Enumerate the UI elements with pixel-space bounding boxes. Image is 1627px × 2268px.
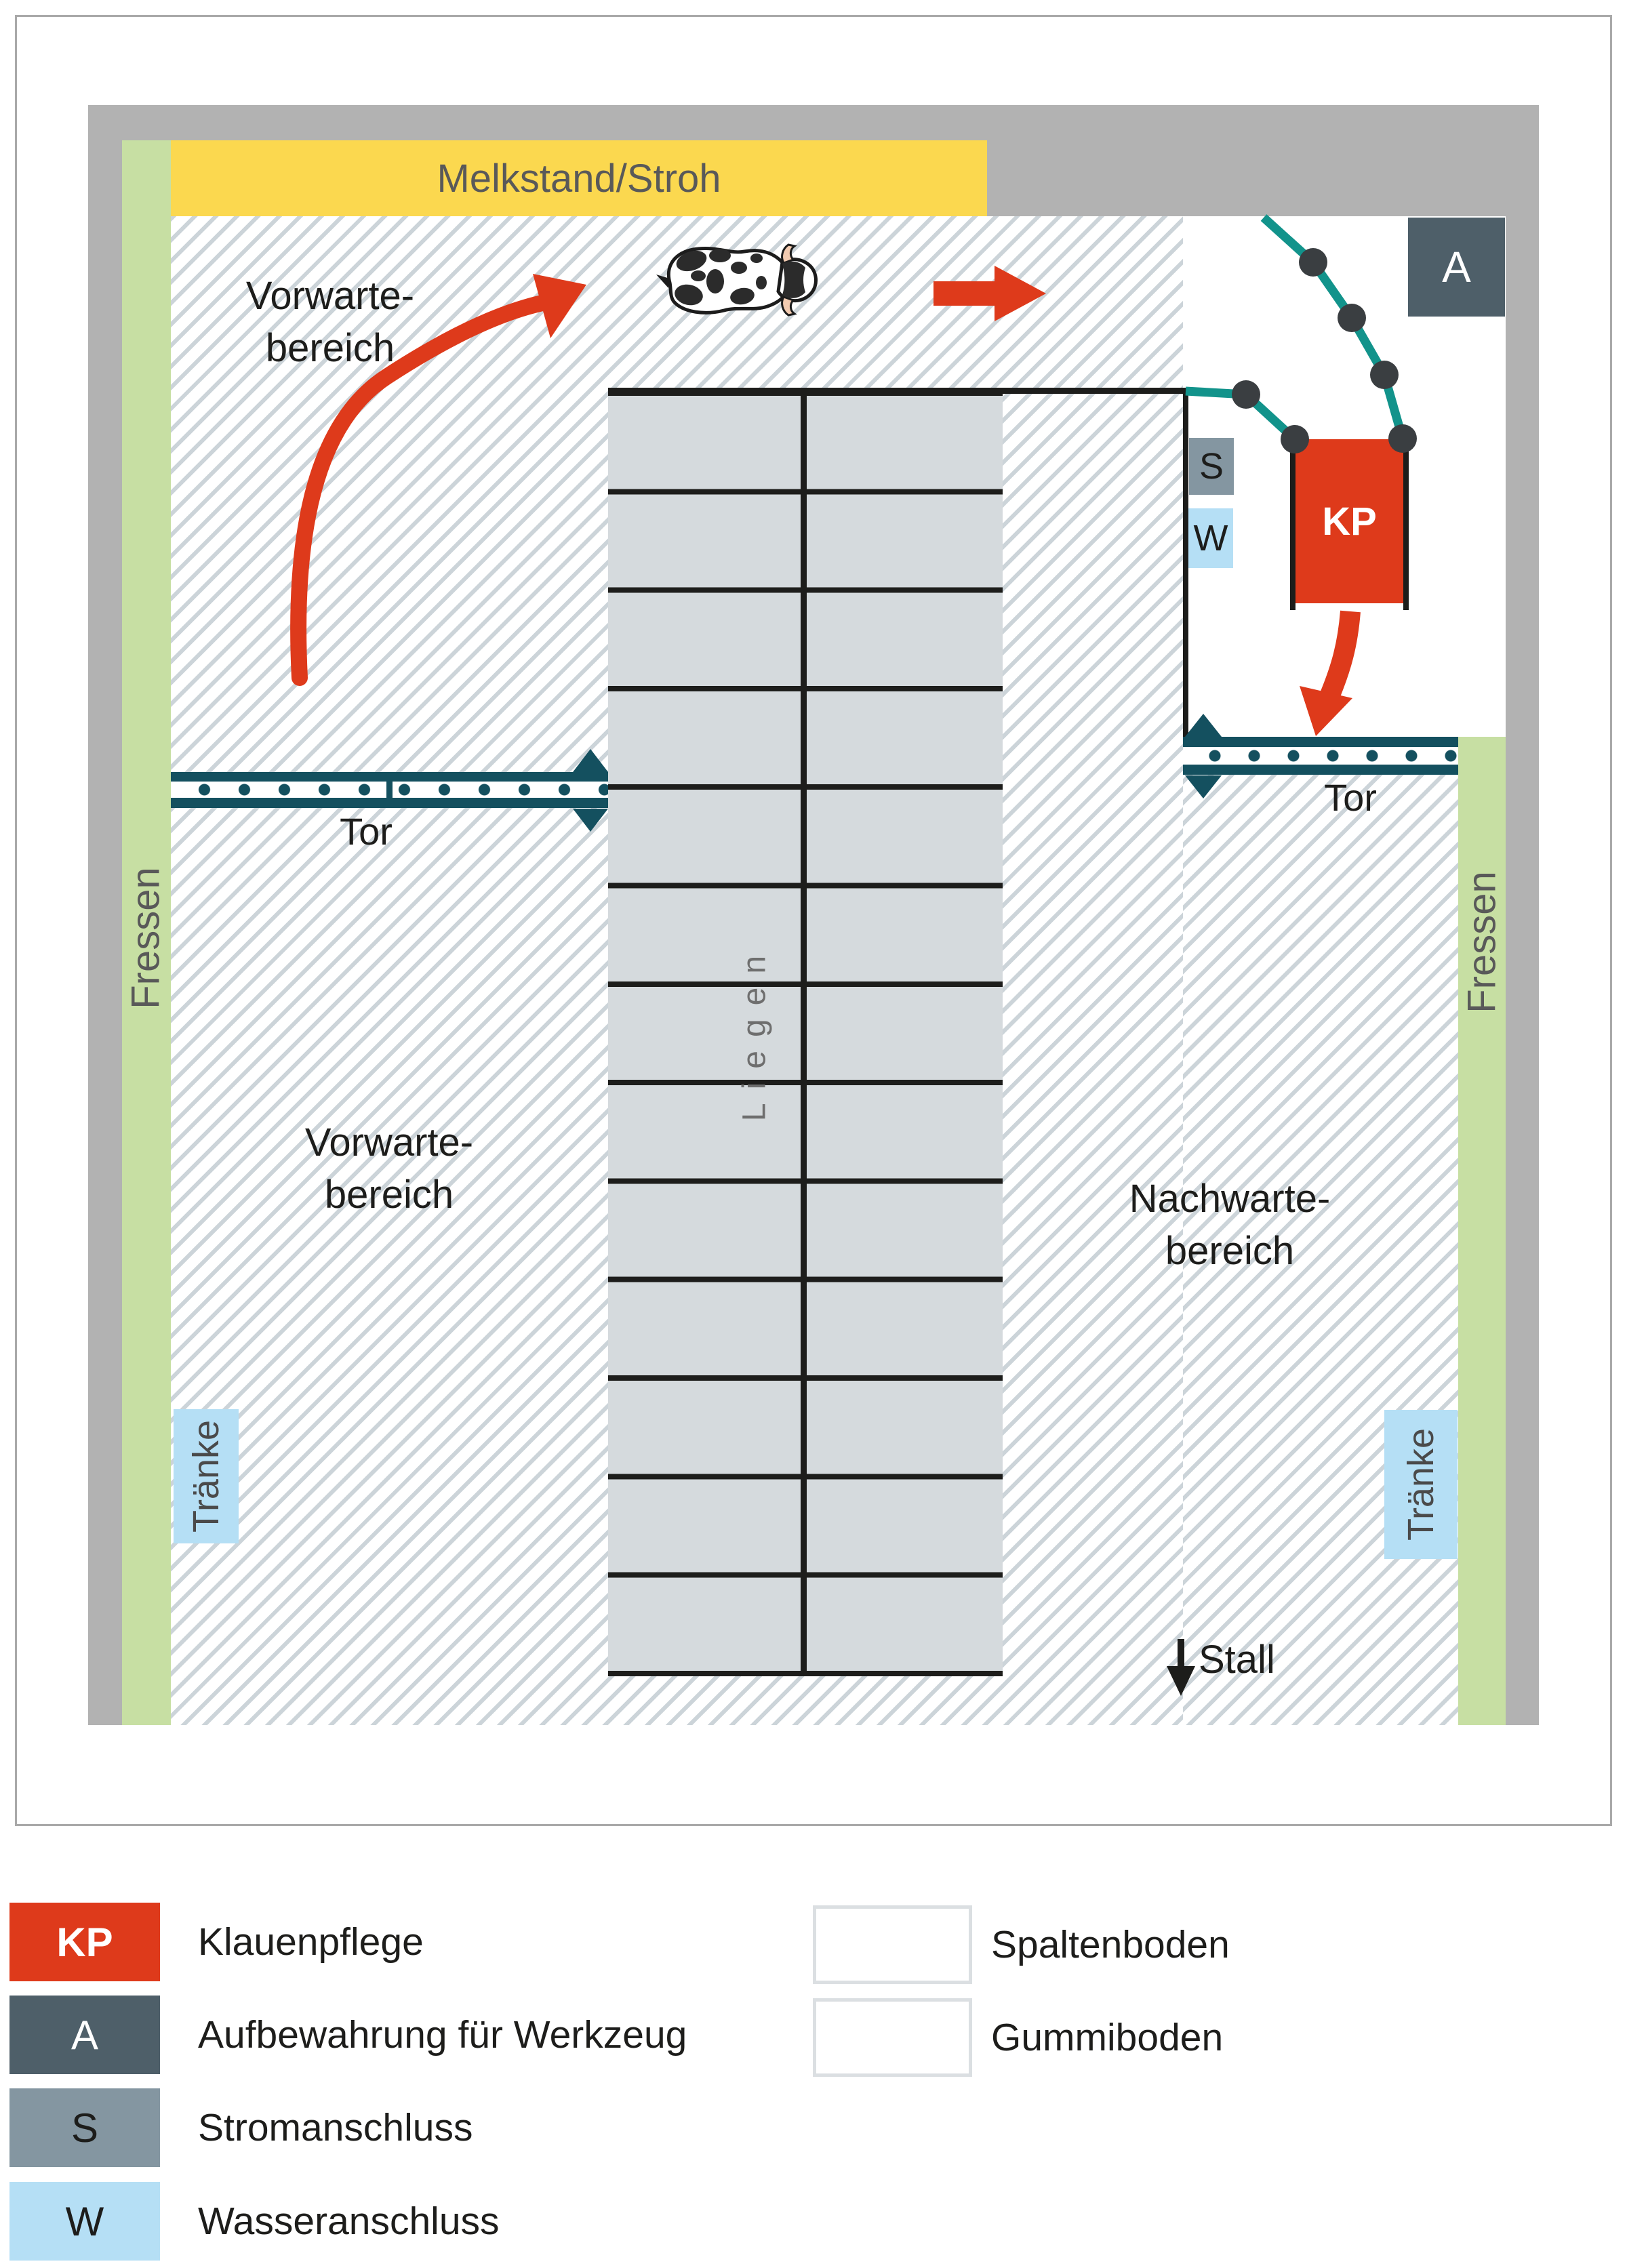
legend-swatch-spaltenboden xyxy=(813,1905,972,1984)
flow-arrow-curved xyxy=(298,274,586,678)
legend-swatch-gummiboden xyxy=(813,1998,972,2077)
legend-label-aufbewahrung: Aufbewahrung für Werkzeug xyxy=(198,1996,687,2074)
legend-key-s: S xyxy=(9,2088,160,2167)
flow-arrow-straight xyxy=(933,266,1046,321)
legend-label-gummiboden: Gummiboden xyxy=(991,1998,1223,2077)
kp-exit-arrow xyxy=(1300,611,1352,736)
cow-illustration xyxy=(656,245,816,315)
legend-key-w: W xyxy=(9,2182,160,2261)
fence-line-right xyxy=(1264,218,1403,439)
legend-label-spaltenboden: Spaltenboden xyxy=(991,1905,1230,1984)
barn-floorplan-figure: Melkstand/Stroh Liegen Tor Tor A S W KP … xyxy=(0,0,1627,2268)
legend-key-kp: KP xyxy=(9,1903,160,1981)
legend-label-stromanschluss: Stromanschluss xyxy=(198,2088,473,2167)
stall-exit-arrow xyxy=(1167,1639,1195,1696)
legend-label-wasseranschluss: Wasseranschluss xyxy=(198,2182,500,2261)
legend-key-a: A xyxy=(9,1996,160,2074)
flow-overlay xyxy=(0,0,1627,1830)
legend-label-klauenpflege: Klauenpflege xyxy=(198,1903,424,1981)
